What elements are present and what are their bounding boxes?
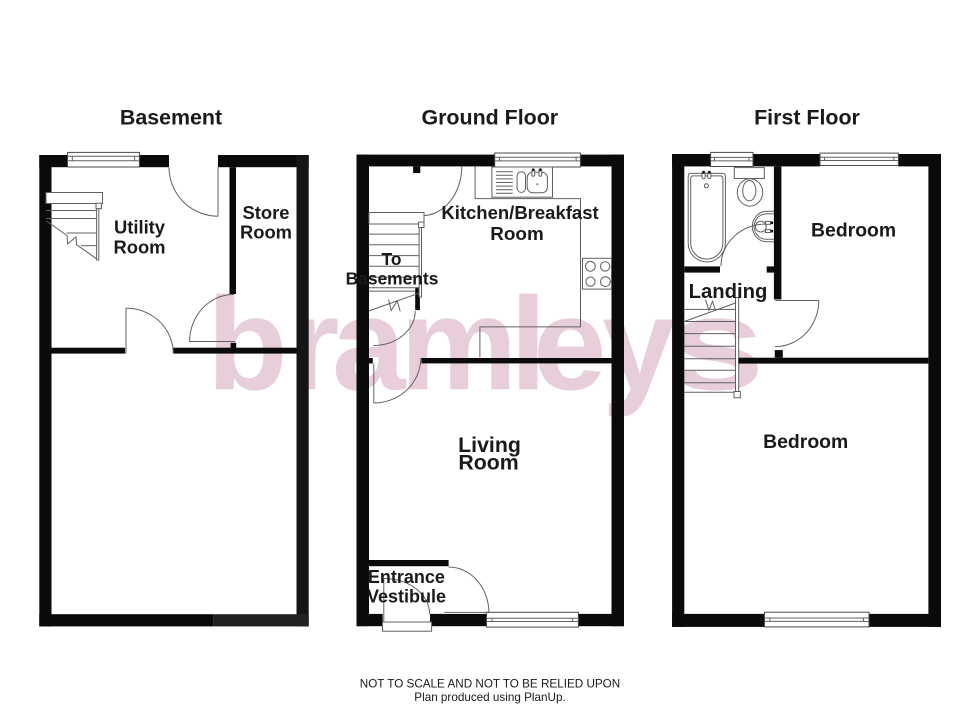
svg-text:Bedroom: Bedroom: [763, 431, 848, 453]
svg-text:First Floor: First Floor: [754, 106, 860, 130]
svg-text:Kitchen/Breakfast: Kitchen/Breakfast: [441, 202, 598, 223]
svg-text:Ground Floor: Ground Floor: [421, 106, 558, 130]
svg-text:Utility: Utility: [114, 217, 166, 238]
svg-text:NOT TO SCALE AND NOT TO BE REL: NOT TO SCALE AND NOT TO BE RELIED UPON: [360, 677, 620, 690]
svg-text:Entrance: Entrance: [368, 567, 445, 587]
svg-text:Room: Room: [240, 222, 292, 243]
svg-text:bramley: bramley: [207, 270, 675, 417]
svg-text:Room: Room: [113, 236, 165, 257]
svg-text:Plan produced using PlanUp.: Plan produced using PlanUp.: [414, 691, 565, 704]
svg-text:Room: Room: [490, 224, 544, 245]
svg-text:Store: Store: [242, 202, 289, 223]
svg-text:Basement: Basement: [120, 106, 222, 130]
svg-text:Landing: Landing: [689, 281, 768, 303]
svg-text:Room: Room: [458, 450, 518, 474]
svg-text:To: To: [382, 249, 402, 269]
svg-text:Basements: Basements: [346, 268, 439, 288]
svg-text:Vestibule: Vestibule: [367, 586, 446, 606]
svg-text:Bedroom: Bedroom: [811, 219, 896, 241]
